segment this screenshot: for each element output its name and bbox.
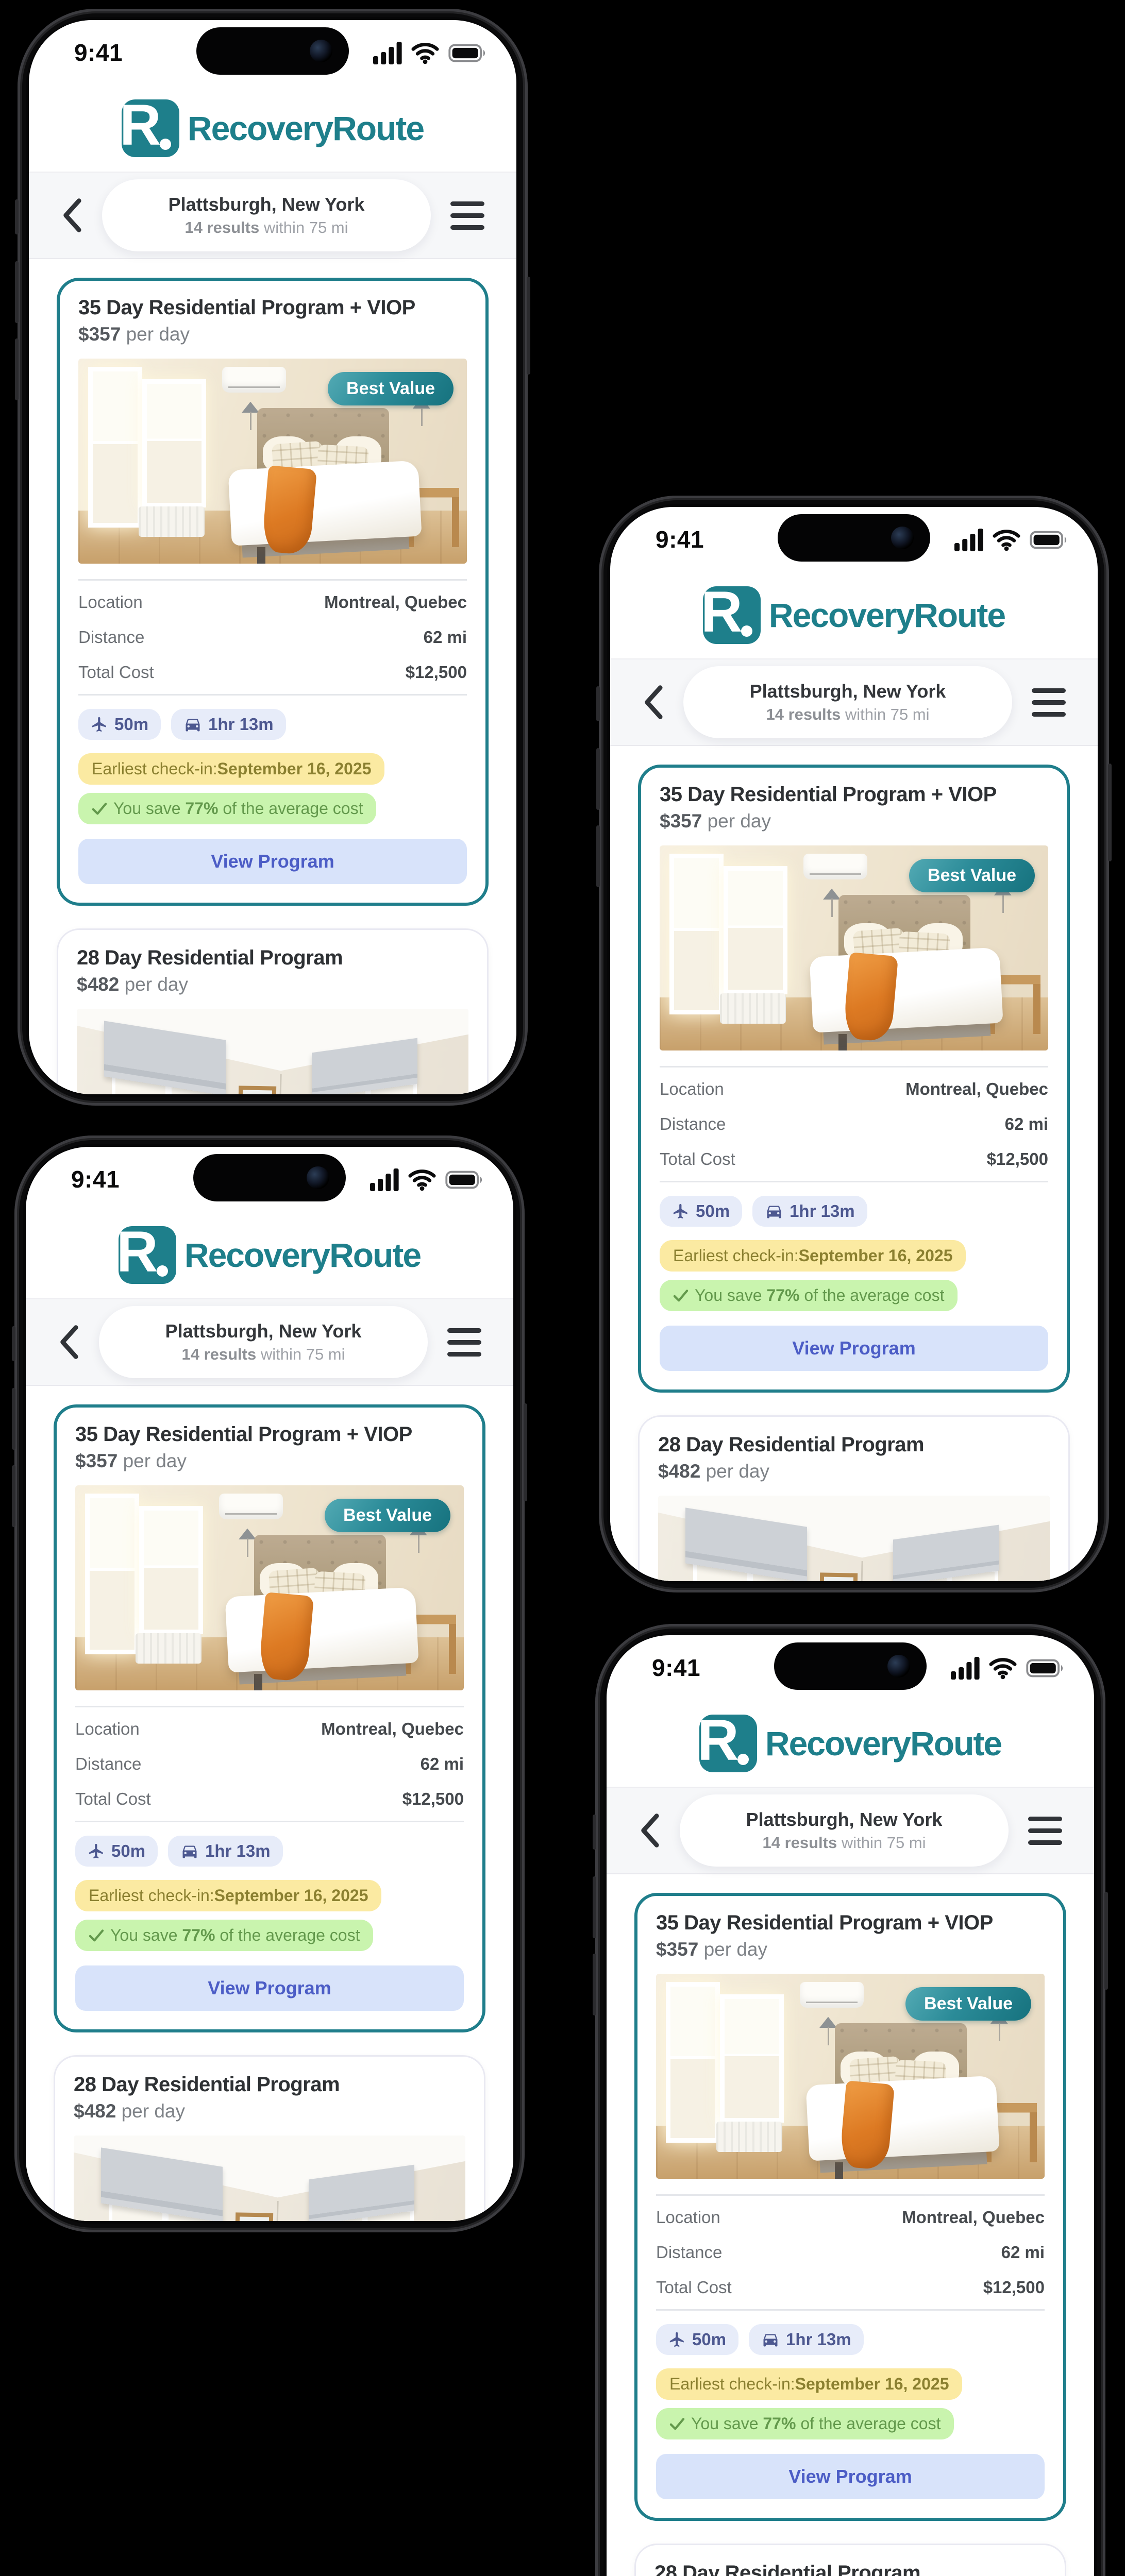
status-bar: 9:41 bbox=[29, 20, 516, 87]
search-summary-pill[interactable]: Plattsburgh, New York 14 results within … bbox=[683, 666, 1012, 738]
program-photo: Best Value bbox=[78, 359, 467, 564]
back-chevron-icon[interactable] bbox=[61, 198, 82, 233]
status-time: 9:41 bbox=[652, 1654, 700, 1682]
detail-row-distance: Distance 62 mi bbox=[656, 2235, 1045, 2270]
program-card-featured[interactable]: 35 Day Residential Program + VIOP $357 p… bbox=[57, 278, 489, 906]
program-photo: Best Value bbox=[75, 1485, 464, 1690]
signal-icon bbox=[954, 529, 983, 551]
search-location: Plattsburgh, New York bbox=[169, 194, 365, 215]
menu-icon[interactable] bbox=[1032, 688, 1066, 717]
program-card-featured[interactable]: 35 Day Residential Program + VIOP $357 p… bbox=[634, 1893, 1066, 2521]
photo-bed bbox=[228, 460, 422, 546]
photo-mirror bbox=[236, 1086, 276, 1094]
savings-banner: You save 77% of the average cost bbox=[660, 1280, 958, 1311]
program-photo bbox=[77, 1009, 468, 1094]
travel-chips: 50m 1hr 13m bbox=[656, 2324, 1045, 2355]
photo-window bbox=[142, 379, 206, 507]
photo-ac-unit bbox=[803, 854, 867, 879]
photo-window bbox=[669, 854, 724, 1015]
photo-radiator bbox=[136, 1633, 202, 1664]
brand-mark-letter: R bbox=[122, 99, 161, 157]
search-header: Plattsburgh, New York 14 results within … bbox=[607, 1787, 1094, 1874]
search-location: Plattsburgh, New York bbox=[746, 1809, 943, 1831]
program-price: $357 per day bbox=[75, 1450, 464, 1472]
car-icon bbox=[180, 1842, 199, 1860]
wifi-icon bbox=[407, 1168, 437, 1191]
camera-dot bbox=[307, 1166, 329, 1189]
check-icon bbox=[673, 1289, 689, 1302]
volume-up-button bbox=[15, 261, 19, 323]
program-price: $357 per day bbox=[660, 810, 1048, 832]
check-icon bbox=[92, 802, 107, 816]
program-photo: Best Value bbox=[660, 845, 1048, 1050]
volume-up-button bbox=[593, 1876, 596, 1938]
photo-bed-leg bbox=[835, 2162, 844, 2179]
volume-down-button bbox=[15, 338, 19, 400]
drive-time-chip: 1hr 13m bbox=[171, 709, 286, 740]
view-program-button[interactable]: View Program bbox=[75, 1965, 464, 2011]
app-logo: R RecoveryRoute bbox=[26, 1225, 513, 1285]
dynamic-island bbox=[778, 514, 930, 562]
search-summary-pill[interactable]: Plattsburgh, New York 14 results within … bbox=[99, 1306, 428, 1378]
search-header: Plattsburgh, New York 14 results within … bbox=[26, 1298, 513, 1386]
detail-row-distance: Distance 62 mi bbox=[75, 1747, 464, 1782]
photo-lamp-stem bbox=[999, 2023, 1000, 2042]
status-time: 9:41 bbox=[74, 39, 123, 66]
brand-mark-icon: R bbox=[703, 586, 761, 644]
plane-icon bbox=[91, 716, 108, 733]
dynamic-island bbox=[774, 1642, 927, 1690]
app-logo: R RecoveryRoute bbox=[610, 585, 1098, 645]
brand-mark-icon: R bbox=[122, 99, 179, 157]
phone-screen: 9:41 bbox=[607, 1635, 1094, 2576]
view-program-button[interactable]: View Program bbox=[656, 2454, 1045, 2499]
photo-lamp-stem bbox=[1002, 895, 1004, 913]
flight-time-chip: 50m bbox=[75, 1836, 158, 1867]
results-list: 35 Day Residential Program + VIOP $357 p… bbox=[607, 1874, 1094, 2576]
status-bar: 9:41 bbox=[26, 1147, 513, 1214]
program-price: $482 per day bbox=[74, 2100, 465, 2122]
car-icon bbox=[183, 715, 202, 734]
program-photo: Best Value bbox=[656, 1974, 1045, 2179]
volume-up-button bbox=[12, 1388, 15, 1450]
phone-mockup: 9:41 bbox=[599, 496, 1109, 1592]
photo-mirror bbox=[233, 2213, 273, 2221]
program-card[interactable]: 28 Day Residential Program $482 per day bbox=[57, 928, 489, 1094]
search-summary-pill[interactable]: Plattsburgh, New York 14 results within … bbox=[102, 179, 431, 251]
status-bar: 9:41 bbox=[607, 1635, 1094, 1702]
mute-switch bbox=[15, 199, 19, 234]
view-program-button[interactable]: View Program bbox=[78, 839, 467, 884]
photo-ac-unit bbox=[800, 1982, 864, 2008]
detail-row-distance: Distance 62 mi bbox=[78, 620, 467, 655]
plane-icon bbox=[668, 2331, 686, 2348]
brand-mark-dot bbox=[741, 625, 752, 637]
program-title: 28 Day Residential Program bbox=[77, 946, 468, 970]
program-card[interactable]: 28 Day Residential Program $482 per day bbox=[634, 2544, 1066, 2576]
program-price: $482 per day bbox=[658, 1461, 1050, 1482]
status-time: 9:41 bbox=[71, 1165, 120, 1193]
status-icons bbox=[370, 1166, 484, 1193]
photo-window bbox=[666, 1982, 720, 2143]
power-button bbox=[527, 277, 530, 375]
checkin-banner: Earliest check-in: September 16, 2025 bbox=[660, 1240, 966, 1272]
detail-row-total-cost: Total Cost $12,500 bbox=[656, 2270, 1045, 2305]
signal-icon bbox=[373, 42, 402, 64]
program-card[interactable]: 28 Day Residential Program $482 per day bbox=[638, 1415, 1070, 1581]
detail-row-total-cost: Total Cost $12,500 bbox=[75, 1782, 464, 1817]
app-logo: R RecoveryRoute bbox=[607, 1714, 1094, 1773]
menu-icon[interactable] bbox=[447, 1328, 481, 1357]
drive-time-chip: 1hr 13m bbox=[168, 1836, 283, 1867]
search-header: Plattsburgh, New York 14 results within … bbox=[29, 172, 516, 259]
mockup-canvas: 9:41 bbox=[0, 0, 1125, 2576]
phone-screen: 9:41 bbox=[610, 507, 1098, 1581]
search-location: Plattsburgh, New York bbox=[165, 1320, 362, 1342]
program-photo bbox=[74, 2136, 465, 2221]
check-icon bbox=[669, 2417, 685, 2431]
status-icons bbox=[951, 1655, 1065, 1682]
travel-chips: 50m 1hr 13m bbox=[75, 1836, 464, 1867]
program-title: 35 Day Residential Program + VIOP bbox=[660, 783, 1048, 806]
photo-window bbox=[724, 866, 787, 994]
savings-banner: You save 77% of the average cost bbox=[75, 1920, 373, 1951]
program-details: Location Montreal, Quebec Distance 62 mi… bbox=[75, 1706, 464, 1822]
photo-bed bbox=[805, 2075, 1000, 2161]
photo-lamp-stem bbox=[831, 899, 833, 917]
program-card[interactable]: 28 Day Residential Program $482 per day bbox=[54, 2055, 485, 2221]
detail-row-location: Location Montreal, Quebec bbox=[660, 1072, 1048, 1107]
results-list: 35 Day Residential Program + VIOP $357 p… bbox=[29, 259, 516, 1094]
view-program-button[interactable]: View Program bbox=[660, 1326, 1048, 1371]
search-location: Plattsburgh, New York bbox=[750, 681, 946, 702]
mute-switch bbox=[596, 686, 600, 721]
battery-icon bbox=[448, 43, 488, 63]
detail-row-location: Location Montreal, Quebec bbox=[656, 2200, 1045, 2235]
search-results-summary: 14 results within 75 mi bbox=[181, 1345, 345, 1364]
photo-bed-leg bbox=[254, 1674, 263, 1690]
check-icon bbox=[89, 1929, 104, 1942]
brand-mark-letter: R bbox=[699, 1715, 739, 1772]
phone-mockup: 9:41 bbox=[14, 1136, 525, 2232]
power-button bbox=[524, 1403, 527, 1501]
brand-wordmark: RecoveryRoute bbox=[769, 596, 1005, 635]
photo-window bbox=[720, 1994, 784, 2123]
phone-screen: 9:41 bbox=[26, 1147, 513, 2221]
program-title: 35 Day Residential Program + VIOP bbox=[656, 1911, 1045, 1935]
app-logo: R RecoveryRoute bbox=[29, 98, 516, 158]
best-value-badge: Best Value bbox=[909, 859, 1035, 892]
search-header: Plattsburgh, New York 14 results within … bbox=[610, 658, 1098, 746]
flight-time-chip: 50m bbox=[656, 2324, 738, 2355]
checkin-banner: Earliest check-in: September 16, 2025 bbox=[75, 1880, 381, 1911]
status-bar: 9:41 bbox=[610, 507, 1098, 574]
wifi-icon bbox=[992, 529, 1021, 551]
brand-wordmark: RecoveryRoute bbox=[765, 1724, 1001, 1763]
phone-mockup: 9:41 bbox=[595, 1624, 1105, 2576]
power-button bbox=[1104, 1892, 1108, 1990]
photo-lamp-stem bbox=[250, 412, 251, 430]
program-price: $482 per day bbox=[77, 974, 468, 995]
search-results-summary: 14 results within 75 mi bbox=[766, 705, 929, 724]
wifi-icon bbox=[410, 42, 440, 64]
savings-banner: You save 77% of the average cost bbox=[78, 793, 376, 824]
photo-lamp-stem bbox=[247, 1538, 248, 1557]
volume-down-button bbox=[596, 825, 600, 887]
brand-mark-icon: R bbox=[119, 1226, 176, 1284]
status-icons bbox=[954, 527, 1069, 553]
mute-switch bbox=[593, 1815, 596, 1850]
brand-mark-dot bbox=[160, 139, 171, 150]
brand-mark-dot bbox=[737, 1754, 749, 1765]
camera-dot bbox=[887, 1655, 910, 1677]
photo-bed-leg bbox=[838, 1034, 847, 1050]
best-value-badge: Best Value bbox=[328, 372, 454, 405]
checkin-banner: Earliest check-in: September 16, 2025 bbox=[656, 2368, 962, 2400]
dynamic-island bbox=[196, 27, 349, 75]
volume-down-button bbox=[593, 1954, 596, 2015]
program-card-featured[interactable]: 35 Day Residential Program + VIOP $357 p… bbox=[638, 765, 1070, 1393]
menu-icon[interactable] bbox=[450, 201, 484, 230]
car-icon bbox=[761, 2330, 780, 2349]
detail-row-total-cost: Total Cost $12,500 bbox=[660, 1142, 1048, 1177]
car-icon bbox=[765, 1202, 783, 1221]
phone-mockup: 9:41 bbox=[18, 9, 528, 1106]
detail-row-total-cost: Total Cost $12,500 bbox=[78, 655, 467, 690]
photo-window bbox=[85, 1494, 139, 1655]
search-results-summary: 14 results within 75 mi bbox=[184, 218, 348, 237]
back-chevron-icon[interactable] bbox=[642, 685, 664, 720]
detail-row-location: Location Montreal, Quebec bbox=[75, 1711, 464, 1747]
volume-down-button bbox=[12, 1465, 15, 1527]
program-card-featured[interactable]: 35 Day Residential Program + VIOP $357 p… bbox=[54, 1404, 485, 2032]
photo-bed bbox=[225, 1587, 419, 1672]
brand-mark-letter: R bbox=[703, 586, 743, 643]
program-details: Location Montreal, Quebec Distance 62 mi… bbox=[660, 1066, 1048, 1182]
photo-bed-leg bbox=[257, 547, 266, 564]
photo-lamp-stem bbox=[828, 2027, 829, 2045]
plane-icon bbox=[88, 1842, 105, 1860]
drive-time-chip: 1hr 13m bbox=[749, 2324, 864, 2355]
search-results-summary: 14 results within 75 mi bbox=[762, 1834, 926, 1852]
camera-dot bbox=[891, 527, 914, 549]
program-photo bbox=[658, 1496, 1050, 1581]
photo-lamp-stem bbox=[418, 1535, 419, 1553]
photo-radiator bbox=[716, 2122, 782, 2153]
brand-mark-letter: R bbox=[119, 1226, 158, 1283]
detail-row-distance: Distance 62 mi bbox=[660, 1107, 1048, 1142]
detail-row-location: Location Montreal, Quebec bbox=[78, 585, 467, 620]
program-price: $357 per day bbox=[78, 324, 467, 345]
best-value-badge: Best Value bbox=[325, 1499, 450, 1532]
photo-ac-unit bbox=[222, 367, 286, 393]
status-time: 9:41 bbox=[656, 526, 704, 553]
photo-ac-unit bbox=[219, 1494, 283, 1519]
program-title: 35 Day Residential Program + VIOP bbox=[75, 1423, 464, 1446]
signal-icon bbox=[370, 1168, 399, 1191]
photo-radiator bbox=[139, 506, 205, 537]
travel-chips: 50m 1hr 13m bbox=[660, 1196, 1048, 1227]
photo-radiator bbox=[720, 993, 786, 1024]
program-price: $357 per day bbox=[656, 1939, 1045, 1960]
brand-mark-icon: R bbox=[699, 1715, 757, 1772]
photo-window bbox=[88, 367, 142, 528]
battery-icon bbox=[445, 1170, 484, 1190]
best-value-badge: Best Value bbox=[905, 1987, 1031, 2021]
program-title: 35 Day Residential Program + VIOP bbox=[78, 296, 467, 319]
battery-icon bbox=[1026, 1658, 1065, 1679]
travel-chips: 50m 1hr 13m bbox=[78, 709, 467, 740]
results-list: 35 Day Residential Program + VIOP $357 p… bbox=[26, 1386, 513, 2221]
program-title: 28 Day Residential Program bbox=[654, 2562, 1046, 2576]
battery-icon bbox=[1030, 530, 1069, 550]
program-details: Location Montreal, Quebec Distance 62 mi… bbox=[78, 579, 467, 696]
brand-mark-dot bbox=[157, 1265, 168, 1277]
volume-up-button bbox=[596, 748, 600, 810]
program-details: Location Montreal, Quebec Distance 62 mi… bbox=[656, 2194, 1045, 2311]
back-chevron-icon[interactable] bbox=[58, 1325, 79, 1360]
photo-mirror bbox=[817, 1573, 857, 1581]
status-icons bbox=[373, 40, 488, 66]
signal-icon bbox=[951, 1657, 980, 1680]
photo-lamp-stem bbox=[421, 408, 423, 427]
photo-bed bbox=[809, 947, 1003, 1032]
savings-banner: You save 77% of the average cost bbox=[656, 2408, 954, 2439]
back-chevron-icon[interactable] bbox=[639, 1813, 660, 1848]
camera-dot bbox=[310, 40, 332, 62]
power-button bbox=[1108, 764, 1112, 861]
brand-wordmark: RecoveryRoute bbox=[184, 1235, 421, 1275]
flight-time-chip: 50m bbox=[660, 1196, 742, 1227]
checkin-banner: Earliest check-in: September 16, 2025 bbox=[78, 753, 384, 785]
plane-icon bbox=[672, 1202, 690, 1220]
flight-time-chip: 50m bbox=[78, 709, 161, 740]
program-title: 28 Day Residential Program bbox=[74, 2073, 465, 2096]
brand-wordmark: RecoveryRoute bbox=[188, 109, 424, 148]
dynamic-island bbox=[193, 1154, 346, 1201]
wifi-icon bbox=[988, 1657, 1018, 1680]
menu-icon[interactable] bbox=[1028, 1817, 1062, 1845]
phone-screen: 9:41 bbox=[29, 20, 516, 1094]
program-title: 28 Day Residential Program bbox=[658, 1433, 1050, 1456]
search-summary-pill[interactable]: Plattsburgh, New York 14 results within … bbox=[680, 1794, 1009, 1867]
drive-time-chip: 1hr 13m bbox=[752, 1196, 867, 1227]
photo-window bbox=[139, 1506, 203, 1634]
mute-switch bbox=[12, 1326, 15, 1361]
results-list: 35 Day Residential Program + VIOP $357 p… bbox=[610, 746, 1098, 1581]
